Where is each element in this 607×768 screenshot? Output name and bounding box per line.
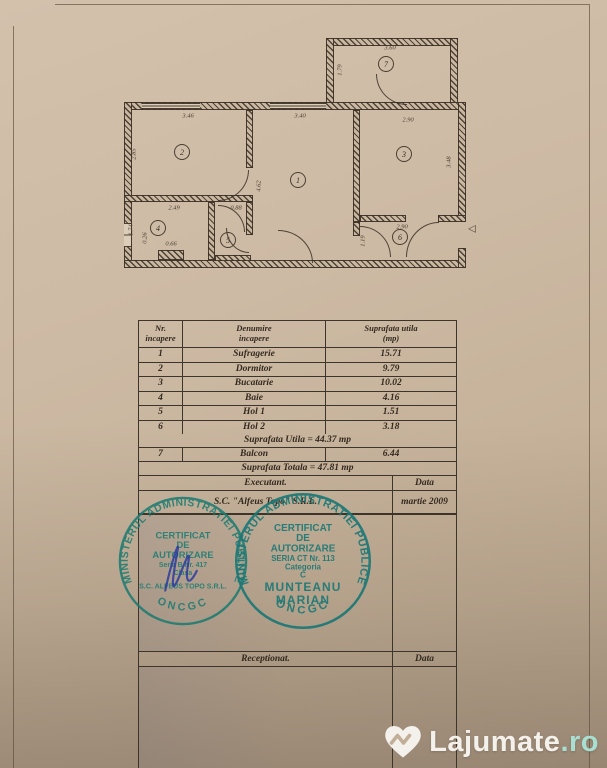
receptionat-label: Receptionat. [139,652,393,666]
room-area: 9.79 [326,363,456,377]
wall-segment [326,38,334,110]
stamp-left-line: CERTIFICAT [156,530,211,540]
dimension-label: 2.49 [168,205,179,212]
room-name: Dormitor [183,363,326,377]
dimension-label: 3.46 [182,113,193,120]
receptionat-header-row: Receptionat. Data [139,652,456,667]
room-name: Baie [183,392,326,406]
table-header-row: Nr. incapere Denumire incapere Suprafata… [139,321,456,348]
door-arc [376,74,407,105]
stamp-right-line: AUTORIZARE [271,544,336,555]
balcon-name: Balcon [183,448,326,461]
room-area: 1.51 [326,406,456,420]
sheet-frame-top [55,4,589,5]
room-name: Sufragerie [183,348,326,362]
entrance-arrow-icon: ◁ [468,224,476,235]
wall-segment [353,222,360,236]
room-name: Hol 2 [183,421,326,435]
table-row: 1Sufragerie15.71 [139,348,456,363]
dimension-label: 0.66 [165,241,176,248]
header-nr: Nr. incapere [139,321,183,347]
wall-segment [215,255,251,261]
watermark-suffix: .ro [560,726,599,758]
data-label-2: Data [393,652,456,666]
table-row: 5Hol 11.51 [139,406,456,421]
suprafata-totala-value: Suprafata Totala = 47.81 mp [139,462,456,475]
stamp-left-line: Clasa [174,570,193,577]
data-label: Data [393,476,456,490]
room-rows: 1Sufragerie15.712Dormitor9.793Bucatarie1… [139,348,456,434]
room-name: Bucatarie [183,377,326,391]
dimension-label: 3.40 [294,113,305,120]
room-nr: 2 [139,363,183,377]
dimension-label: 3.60 [384,45,395,52]
room-number-marker: 5 [220,232,236,248]
wall-segment [353,110,360,222]
wall-segment [450,38,458,110]
dimension-label: 2.85 [131,148,138,159]
room-nr: 6 [139,421,183,435]
room-number-marker: 7 [378,56,394,72]
room-area: 4.16 [326,392,456,406]
table-row: 4Baie4.16 [139,392,456,407]
wall-segment [458,102,466,218]
stamp-area-right-cell [393,515,456,651]
room-number-marker: 4 [150,220,166,236]
table-row: 3Bucatarie10.02 [139,377,456,392]
lajumate-heart-icon [383,724,423,760]
window-segment [142,103,200,109]
stamp-right-line: C [300,570,306,580]
svg-text:ONCGC: ONCGC [155,595,210,613]
table-row: 6Hol 23.18 [139,421,456,435]
stamp-left-line: AUTORIZARE [152,550,213,560]
authorization-stamp-right: MINISTERUL ADMINISTRATIEI PUBLICE ONCGC … [230,488,376,634]
stamp-right-line: MARIAN [276,593,330,607]
room-nr: 4 [139,392,183,406]
header-suprafata: Suprafata utila (mp) [326,321,456,347]
room-number-marker: 1 [290,172,306,188]
data-value: martie 2009 [393,491,456,513]
header-denumire: Denumire incapere [183,321,326,347]
room-nr: 3 [139,377,183,391]
balcon-nr: 7 [139,448,183,461]
sheet-frame-right [589,4,590,768]
door-arc [278,230,313,263]
window-segment [270,103,326,109]
scanned-floorplan-document: ◁ 12345673.463.402.903.601.792.854.623.4… [0,0,607,768]
floorplan-drawing: ◁ 12345673.463.402.903.601.792.854.623.4… [118,30,478,278]
suprafata-utila-row: Suprafata Utila = 44.37 mp [139,434,456,448]
lajumate-watermark: Lajumate.ro [383,724,599,760]
wall-segment [438,215,466,222]
dimension-label: 0.88 [230,205,241,212]
door-arc [406,222,439,257]
room-number-marker: 3 [396,146,412,162]
receptionat-empty-cell [139,667,393,768]
stamp-right-line: DE [296,533,310,544]
room-area: 10.02 [326,377,456,391]
wall-segment [458,248,466,268]
room-nr: 5 [139,406,183,420]
table-row: 2Dormitor9.79 [139,363,456,378]
suprafata-utila-value: Suprafata Utila = 44.37 mp [139,434,456,447]
dimension-label: 3.48 [446,156,453,167]
balcon-row: 7 Balcon 6.44 [139,448,456,462]
dimension-label: 2.90 [402,117,413,124]
room-name: Hol 1 [183,406,326,420]
watermark-text: Lajumate [429,726,560,758]
wall-segment [246,110,253,168]
sheet-frame-left [13,26,14,768]
suprafata-totala-row: Suprafata Totala = 47.81 mp [139,462,456,476]
stamp-left-line: S.C. ALFEUS TOPO S.R.L. [139,583,227,591]
wall-segment [208,202,215,260]
dimension-label: 1.74 [128,224,135,235]
room-number-marker: 2 [174,144,190,160]
wall-segment [360,215,406,222]
dimension-label: 4.62 [256,180,263,191]
dimension-label: 2.90 [396,224,407,231]
stamp-left-ring-bottom: ONCGC [155,595,210,613]
dimension-label: 1.79 [337,64,344,75]
room-number-marker: 6 [392,229,408,245]
wall-segment [158,250,184,260]
room-nr: 1 [139,348,183,362]
balcon-area: 6.44 [326,448,456,461]
room-area: 3.18 [326,421,456,435]
dimension-label: 1.19 [360,235,367,246]
stamp-right-line: CERTIFICAT [274,523,332,534]
room-area: 15.71 [326,348,456,362]
dimension-label: 0.26 [142,232,149,243]
